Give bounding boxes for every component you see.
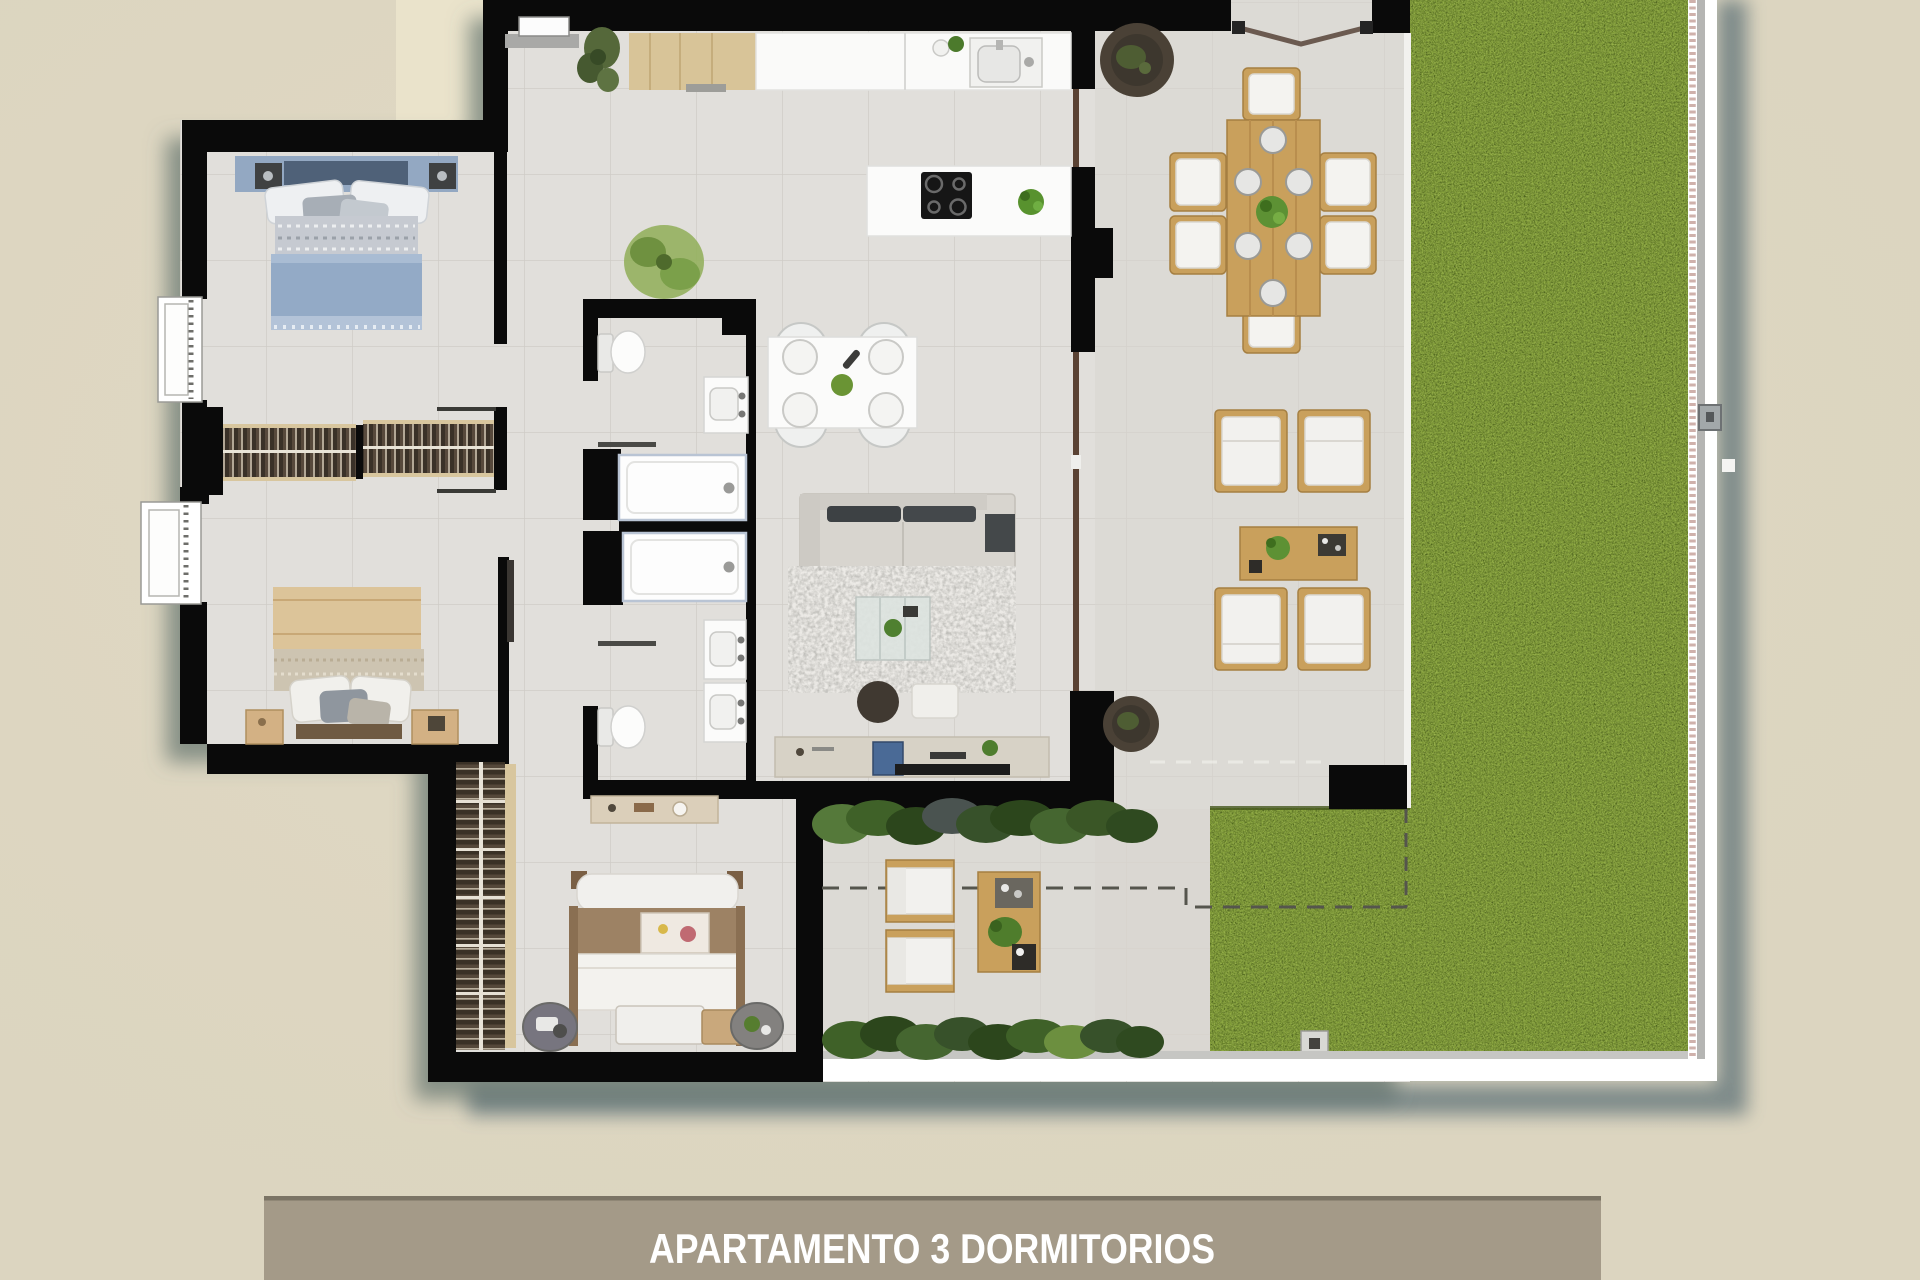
svg-text:APARTAMENTO 3 DORMITORIOS: APARTAMENTO 3 DORMITORIOS [649, 1225, 1215, 1272]
